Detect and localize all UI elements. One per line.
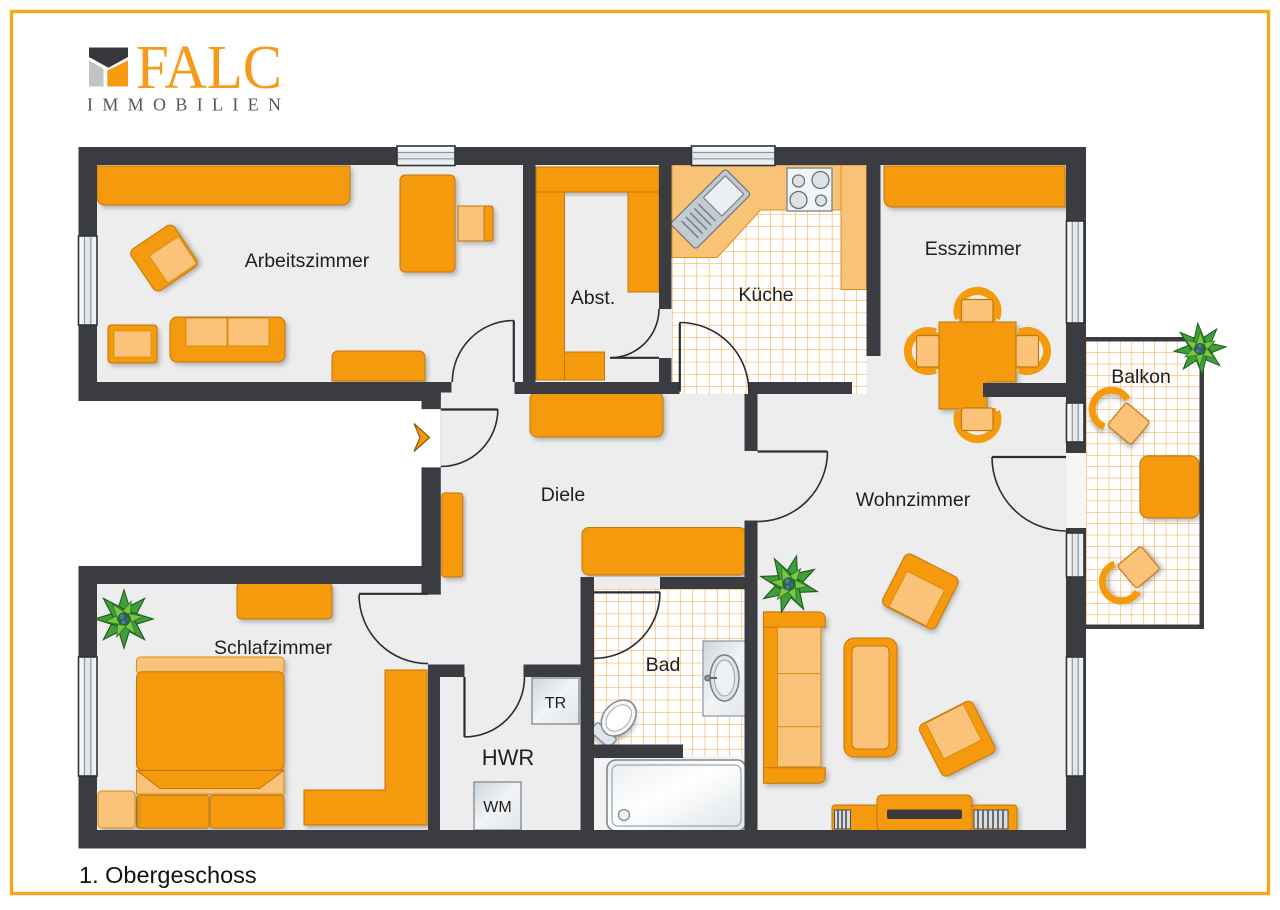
svg-text:Esszimmer: Esszimmer bbox=[925, 238, 1022, 260]
svg-text:WM: WM bbox=[483, 799, 511, 816]
svg-text:Bad: Bad bbox=[646, 654, 681, 676]
svg-text:TR: TR bbox=[545, 695, 566, 712]
svg-text:Küche: Küche bbox=[738, 284, 793, 306]
svg-text:Arbeitszimmer: Arbeitszimmer bbox=[245, 250, 370, 272]
svg-text:Schlafzimmer: Schlafzimmer bbox=[214, 637, 333, 659]
svg-text:1. Obergeschoss: 1. Obergeschoss bbox=[79, 862, 257, 888]
svg-text:FALC: FALC bbox=[136, 34, 282, 102]
svg-text:HWR: HWR bbox=[482, 745, 535, 770]
svg-text:Wohnzimmer: Wohnzimmer bbox=[856, 489, 971, 511]
svg-text:Abst.: Abst. bbox=[571, 287, 615, 309]
svg-text:Balkon: Balkon bbox=[1111, 366, 1171, 388]
svg-text:IMMOBILIEN: IMMOBILIEN bbox=[87, 95, 281, 115]
svg-text:Diele: Diele bbox=[541, 484, 585, 506]
